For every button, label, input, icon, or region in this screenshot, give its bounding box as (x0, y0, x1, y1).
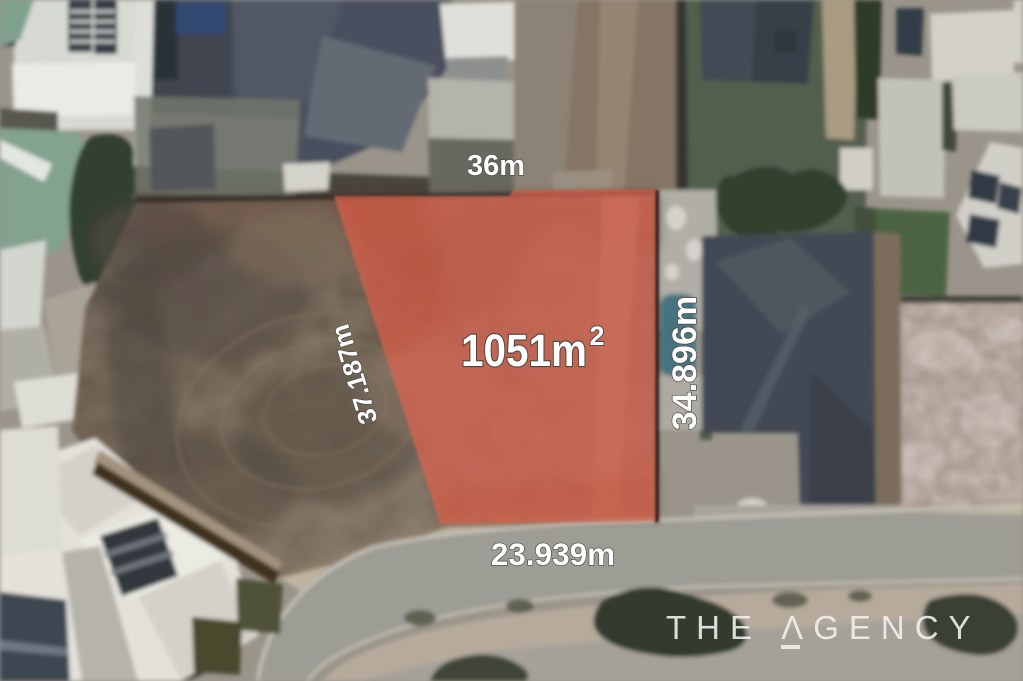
svg-text:1051m: 1051m (461, 325, 587, 376)
svg-text:23.939m: 23.939m (491, 536, 615, 572)
svg-text:36m: 36m (467, 150, 525, 182)
svg-text:THE ΛGENCY: THE ΛGENCY (666, 609, 981, 646)
svg-text:2: 2 (589, 321, 604, 351)
svg-text:34.896m: 34.896m (666, 296, 704, 430)
